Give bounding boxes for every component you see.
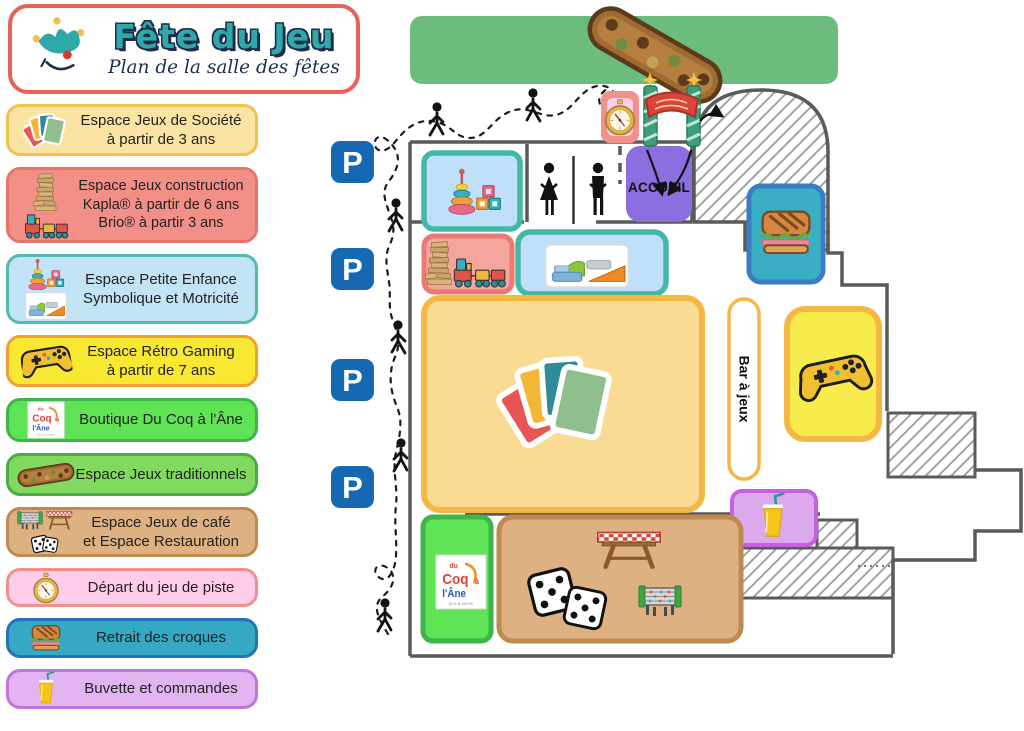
header-card: Fête du Jeu Plan de la salle des fêtes: [8, 4, 360, 94]
page-title: Fête du Jeu: [100, 20, 348, 55]
legend-item-jeux-construction: Espace Jeux construction Kapla® à partir…: [6, 167, 258, 243]
legend-item-petite-enfance: Espace Petite Enfance Symbolique et Motr…: [6, 254, 258, 324]
parking-label: P: [342, 470, 363, 505]
legend-label: à partir de 3 ans: [75, 130, 247, 149]
die-icon: [563, 586, 607, 630]
room-construction: [424, 236, 512, 292]
baby-toys-and-mats-icon: [17, 258, 75, 321]
games-bar-label: Bar à jeux: [737, 356, 753, 423]
room-petite-enfance-motricite: [518, 232, 666, 294]
legend-label: Retrait des croques: [75, 628, 247, 647]
parking-icon: P: [331, 466, 374, 508]
games-bar: Bar à jeux: [729, 299, 759, 479]
legend-item-boutique: Boutique Du Coq à l'Âne: [6, 398, 258, 442]
room-buvette: [732, 491, 816, 545]
wc-woman-icon: [540, 163, 558, 215]
floor-plan: P P P P: [320, 0, 1024, 731]
parking-label: P: [342, 145, 363, 180]
legend-label: Espace Rétro Gaming: [75, 342, 247, 361]
legend-item-buvette: Buvette et commandes: [6, 669, 258, 709]
coq-ane-logo: [436, 555, 486, 609]
wooden-game-icon: [17, 462, 75, 488]
page-subtitle: Plan de la salle des fêtes: [100, 57, 348, 78]
legend-label: Buvette et commandes: [75, 679, 247, 698]
pedestrian-icon: [389, 198, 402, 231]
foam-mats-icon: [546, 245, 629, 287]
legend-label: Départ du jeu de piste: [75, 578, 247, 597]
parking-label: P: [342, 252, 363, 287]
legend-item-jeu-de-piste: Départ du jeu de piste: [6, 568, 258, 607]
room-petite-enfance-toys: [424, 153, 520, 229]
pedestrian-icon: [430, 102, 443, 135]
croque-icon: [762, 212, 810, 253]
legend-label: Symbolique et Motricité: [75, 289, 247, 308]
legend-item-jeux-cafe-restauration: Espace Jeux de café et Espace Restaurati…: [6, 507, 258, 557]
compass-icon: [17, 571, 75, 605]
legend-item-retro-gaming: Espace Rétro Gaming à partir de 7 ans: [6, 335, 258, 387]
legend-label: Brio® à partir 3 ans: [75, 214, 247, 233]
legend: Espace Jeux de Société à partir de 3 ans…: [6, 104, 258, 709]
jester-hat-icon: [20, 12, 94, 86]
hatched-wall: [888, 413, 975, 477]
legend-label: Espace Jeux de café: [75, 513, 247, 532]
trail-start-marker: [601, 91, 639, 143]
croque-icon: [17, 623, 75, 653]
juice-icon: [17, 671, 75, 707]
wc-man-icon: [590, 163, 606, 215]
poster: du Coq à l'Âne jeux & jouets: [0, 0, 1024, 731]
legend-label: et Espace Restauration: [75, 532, 247, 551]
gamepad-icon: [17, 342, 75, 380]
legend-label: Espace Jeux construction: [75, 177, 247, 196]
legend-label: à partir de 7 ans: [75, 361, 247, 380]
room-cafe-restauration: [499, 517, 741, 641]
hatched-wall: [733, 548, 893, 598]
parking-icon: P: [331, 359, 374, 401]
room-retrait-croques: [749, 186, 823, 282]
room-jeux-societe: [424, 298, 702, 510]
legend-item-croques: Retrait des croques: [6, 618, 258, 658]
pedestrian-icon: [527, 88, 540, 121]
coq-ane-logo: [17, 401, 75, 439]
restroom-area: [540, 156, 606, 224]
legend-label: Espace Jeux de Société: [75, 111, 247, 130]
legend-item-jeux-societe: Espace Jeux de Société à partir de 3 ans: [6, 104, 258, 156]
legend-label: Espace Petite Enfance: [75, 270, 247, 289]
legend-item-jeux-traditionnels: Espace Jeux traditionnels: [6, 453, 258, 496]
parking-icon: P: [331, 141, 374, 183]
parking-label: P: [342, 363, 363, 398]
banner: [646, 93, 698, 118]
cards-icon: [17, 107, 75, 153]
pedestrian-icon: [378, 598, 391, 631]
legend-label: Boutique Du Coq à l'Âne: [75, 410, 247, 429]
legend-label: Espace Jeux traditionnels: [75, 465, 247, 484]
room-retro-gaming: [787, 309, 879, 439]
legend-label: Kapla® à partir de 6 ans: [75, 196, 247, 215]
room-boutique: [423, 517, 491, 641]
parking-icon: P: [331, 248, 374, 290]
foosball-picnic-dice-icon: [17, 509, 75, 556]
kapla-and-train-icon: [17, 172, 75, 239]
